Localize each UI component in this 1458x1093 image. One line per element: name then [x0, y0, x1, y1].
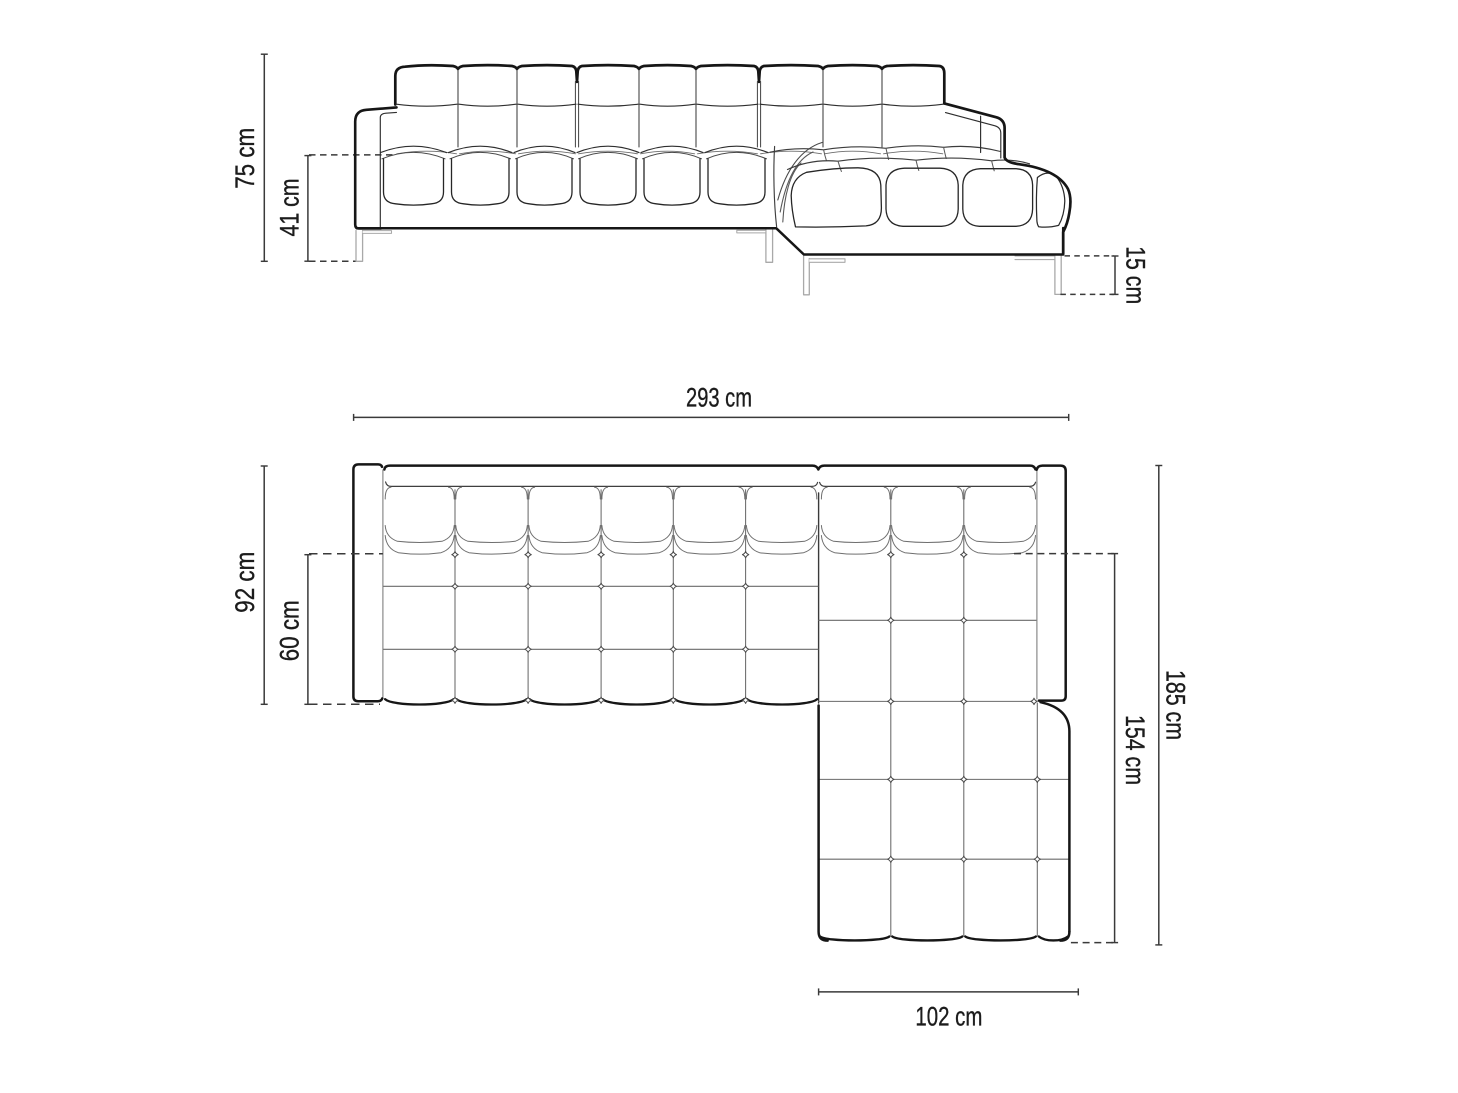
svg-text:60 cm: 60 cm — [275, 600, 305, 661]
svg-text:154 cm: 154 cm — [1120, 715, 1150, 785]
svg-text:293 cm: 293 cm — [686, 383, 752, 413]
svg-text:75 cm: 75 cm — [230, 128, 260, 189]
svg-text:92 cm: 92 cm — [230, 552, 260, 613]
svg-text:15 cm: 15 cm — [1120, 246, 1150, 304]
svg-text:41 cm: 41 cm — [275, 179, 305, 237]
svg-text:185 cm: 185 cm — [1160, 670, 1190, 740]
svg-text:102 cm: 102 cm — [915, 1002, 982, 1032]
